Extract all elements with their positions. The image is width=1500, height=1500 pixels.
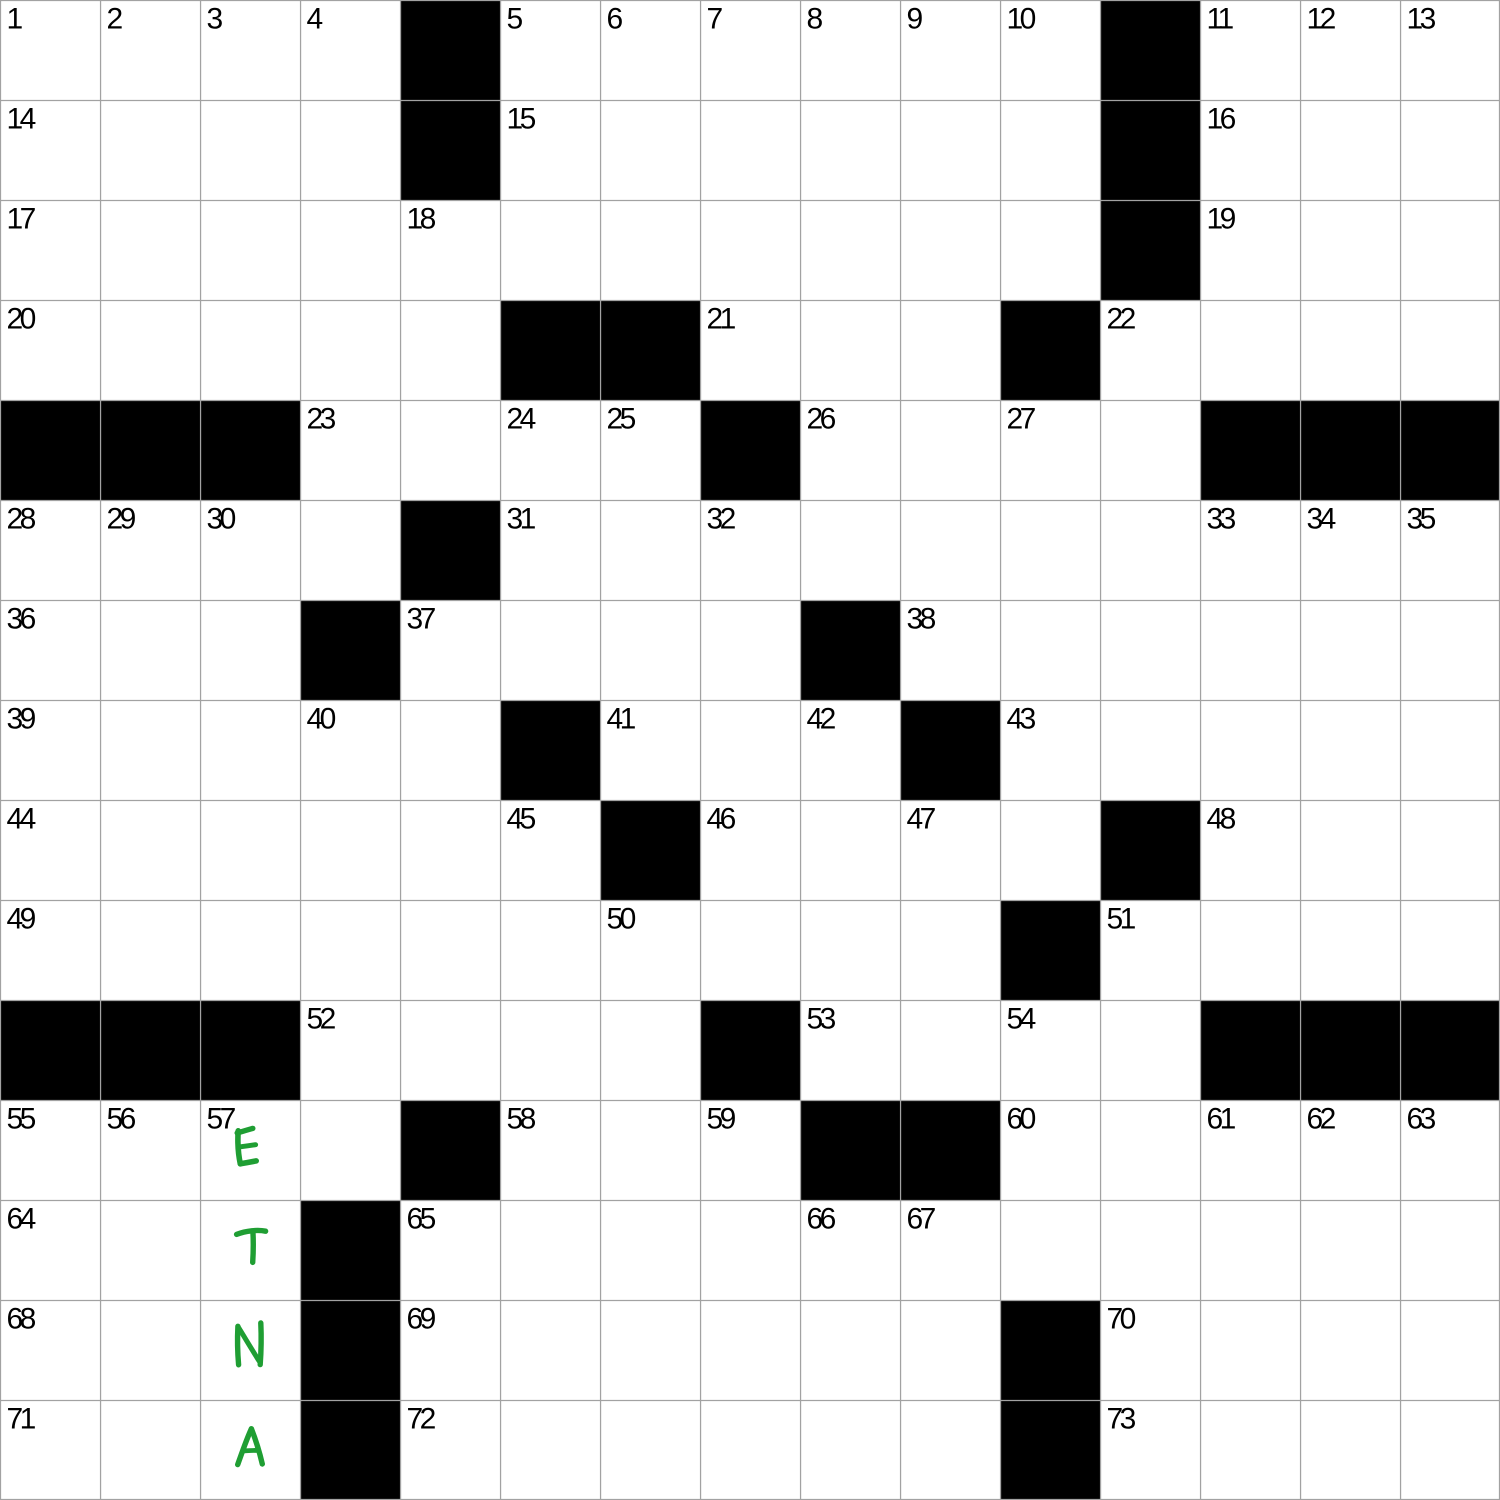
svg-text:66: 66: [807, 1202, 836, 1235]
svg-text:16: 16: [1207, 102, 1236, 135]
svg-text:72: 72: [407, 1402, 436, 1435]
svg-text:57: 57: [207, 1102, 236, 1135]
svg-text:22: 22: [1107, 302, 1136, 335]
svg-text:37: 37: [407, 602, 436, 635]
svg-text:45: 45: [507, 802, 536, 835]
svg-text:18: 18: [407, 202, 436, 235]
svg-text:52: 52: [307, 1002, 336, 1035]
svg-text:31: 31: [507, 502, 536, 535]
svg-text:70: 70: [1107, 1302, 1136, 1335]
svg-text:43: 43: [1007, 702, 1036, 735]
svg-text:54: 54: [1007, 1002, 1036, 1035]
svg-text:44: 44: [7, 802, 36, 835]
svg-text:36: 36: [7, 602, 36, 635]
svg-text:27: 27: [1007, 402, 1036, 435]
svg-text:67: 67: [907, 1202, 936, 1235]
svg-text:60: 60: [1007, 1102, 1036, 1135]
svg-text:41: 41: [607, 702, 636, 735]
svg-text:63: 63: [1407, 1102, 1436, 1135]
svg-text:71: 71: [7, 1402, 36, 1435]
svg-text:23: 23: [307, 402, 336, 435]
svg-text:62: 62: [1307, 1102, 1336, 1135]
svg-text:35: 35: [1407, 502, 1436, 535]
svg-text:40: 40: [307, 702, 336, 735]
svg-text:26: 26: [807, 402, 836, 435]
svg-text:56: 56: [107, 1102, 136, 1135]
svg-text:17: 17: [7, 202, 36, 235]
svg-text:59: 59: [707, 1102, 736, 1135]
svg-text:61: 61: [1207, 1102, 1236, 1135]
svg-text:65: 65: [407, 1202, 436, 1235]
svg-text:15: 15: [507, 102, 536, 135]
svg-text:69: 69: [407, 1302, 436, 1335]
svg-text:39: 39: [7, 702, 36, 735]
svg-text:58: 58: [507, 1102, 536, 1135]
svg-text:51: 51: [1107, 902, 1136, 935]
svg-text:53: 53: [807, 1002, 836, 1035]
svg-text:11: 11: [1207, 2, 1234, 35]
svg-text:42: 42: [807, 702, 836, 735]
svg-text:12: 12: [1307, 2, 1336, 35]
svg-text:19: 19: [1207, 202, 1236, 235]
svg-text:64: 64: [7, 1202, 36, 1235]
svg-text:73: 73: [1107, 1402, 1136, 1435]
svg-text:34: 34: [1307, 502, 1336, 535]
svg-text:47: 47: [907, 802, 936, 835]
svg-text:50: 50: [607, 902, 636, 935]
svg-text:30: 30: [207, 502, 236, 535]
svg-text:25: 25: [607, 402, 636, 435]
svg-text:48: 48: [1207, 802, 1236, 835]
svg-text:20: 20: [7, 302, 36, 335]
svg-text:21: 21: [707, 302, 736, 335]
svg-text:29: 29: [107, 502, 136, 535]
svg-text:14: 14: [7, 102, 36, 135]
svg-text:33: 33: [1207, 502, 1236, 535]
svg-text:38: 38: [907, 602, 936, 635]
svg-text:13: 13: [1407, 2, 1436, 35]
svg-text:49: 49: [7, 902, 36, 935]
svg-text:68: 68: [7, 1302, 36, 1335]
svg-text:46: 46: [707, 802, 736, 835]
svg-text:32: 32: [707, 502, 736, 535]
svg-text:10: 10: [1007, 2, 1036, 35]
svg-text:55: 55: [7, 1102, 36, 1135]
svg-text:24: 24: [507, 402, 536, 435]
svg-text:28: 28: [7, 502, 36, 535]
